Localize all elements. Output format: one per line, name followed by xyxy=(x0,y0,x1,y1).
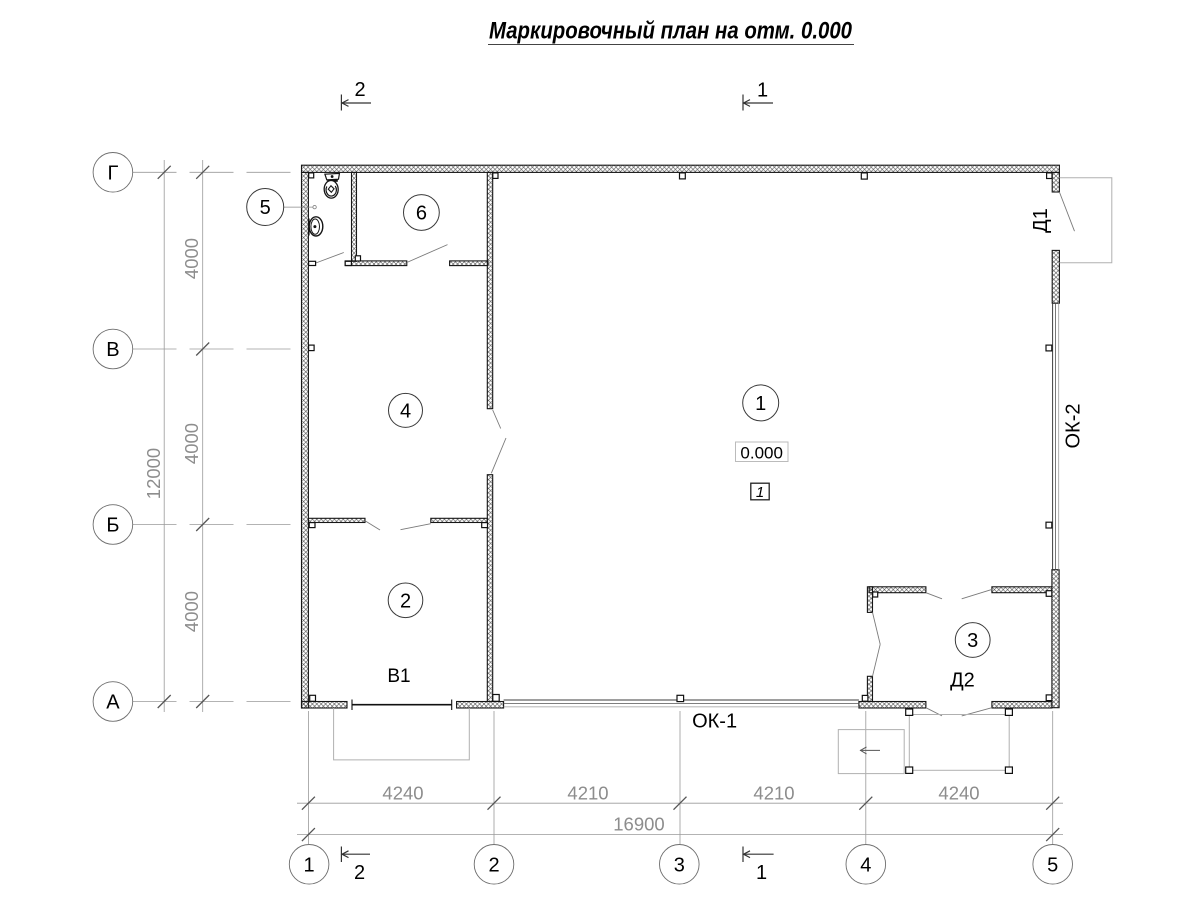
svg-text:2: 2 xyxy=(488,855,499,877)
svg-text:0.000: 0.000 xyxy=(740,443,783,462)
svg-text:Д1: Д1 xyxy=(1030,208,1052,233)
svg-text:5: 5 xyxy=(1047,855,1058,877)
svg-text:6: 6 xyxy=(416,203,427,225)
svg-text:4210: 4210 xyxy=(753,783,794,804)
svg-text:1: 1 xyxy=(755,393,766,415)
svg-text:Б: Б xyxy=(106,515,119,537)
svg-text:ОК-1: ОК-1 xyxy=(692,710,737,732)
svg-text:В1: В1 xyxy=(387,666,410,687)
svg-text:1: 1 xyxy=(304,855,315,877)
svg-text:3: 3 xyxy=(674,855,685,877)
svg-text:4: 4 xyxy=(860,855,871,877)
svg-text:1: 1 xyxy=(757,80,768,102)
svg-text:16900: 16900 xyxy=(613,814,664,835)
svg-text:Д2: Д2 xyxy=(950,670,975,692)
svg-text:4000: 4000 xyxy=(181,591,202,632)
svg-text:2: 2 xyxy=(354,862,365,884)
svg-text:А: А xyxy=(106,692,120,714)
svg-text:Г: Г xyxy=(107,163,118,185)
svg-text:4210: 4210 xyxy=(567,783,608,804)
svg-text:1: 1 xyxy=(756,862,767,884)
svg-text:2: 2 xyxy=(354,79,365,101)
svg-text:В: В xyxy=(106,339,119,361)
svg-text:4240: 4240 xyxy=(938,783,979,804)
svg-text:2: 2 xyxy=(400,591,411,613)
svg-text:4240: 4240 xyxy=(382,783,423,804)
svg-text:5: 5 xyxy=(260,197,271,219)
svg-text:4: 4 xyxy=(400,401,411,423)
svg-text:3: 3 xyxy=(967,630,978,652)
svg-text:4000: 4000 xyxy=(181,238,202,279)
svg-text:1: 1 xyxy=(756,484,764,501)
svg-text:Маркировочный план на отм. 0.0: Маркировочный план на отм. 0.000 xyxy=(489,18,853,45)
svg-text:ОК-2: ОК-2 xyxy=(1063,404,1085,449)
svg-text:12000: 12000 xyxy=(143,448,164,499)
svg-text:4000: 4000 xyxy=(181,423,202,464)
